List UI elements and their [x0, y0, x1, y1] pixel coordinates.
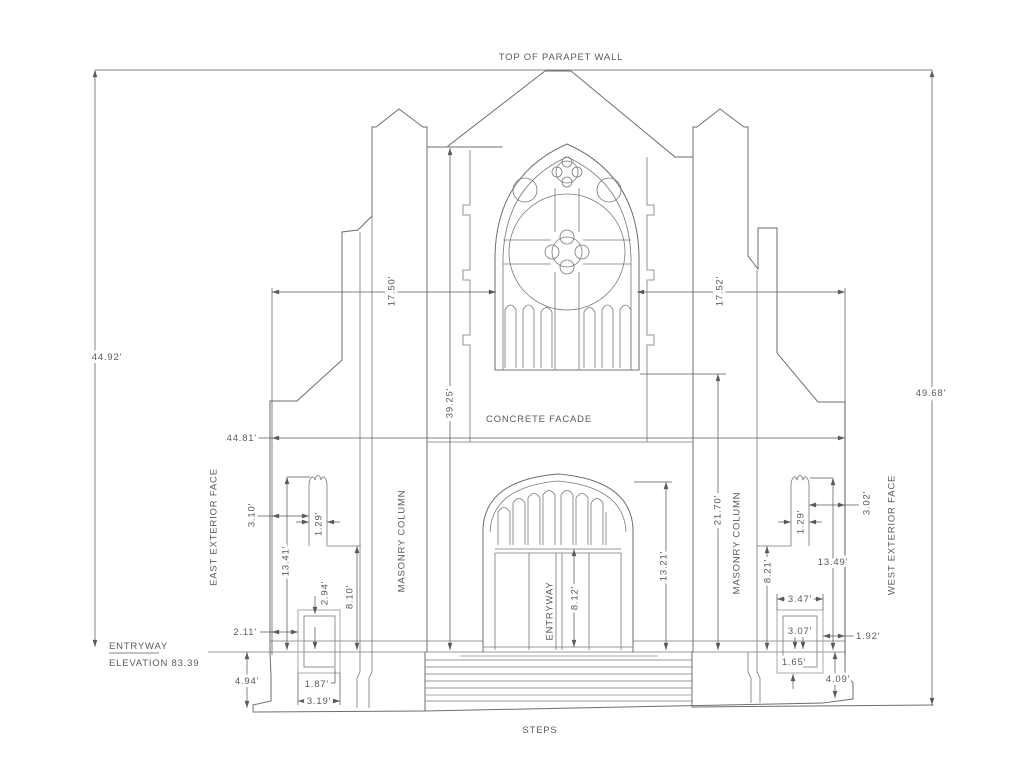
- dim-west-pinnacle-height: 13.49': [818, 557, 848, 568]
- dim-east-bay: 17.50': [386, 276, 397, 306]
- dim-overall-east: 44.92': [92, 352, 122, 363]
- east-tower: [270, 109, 427, 708]
- concrete-facade-label: CONCRETE FACADE: [486, 414, 592, 425]
- dim-west-ledge-height: 8.21': [762, 559, 773, 583]
- roundel-left: [513, 178, 537, 202]
- dim-east-pedestal-width: 3.19': [307, 696, 331, 707]
- dim-east-base-height: 4.94': [235, 676, 259, 687]
- masonry-column-west-label: MASONRY COLUMN: [731, 492, 742, 595]
- dim-upper-wall: 39.25': [444, 388, 455, 418]
- rose-window: [495, 144, 639, 370]
- dim-east-pinnacle-width: 1.29': [313, 512, 324, 536]
- entry-level-elevation: ELEVATION 83.39: [109, 658, 199, 669]
- entry-lancets: [498, 491, 606, 546]
- masonry-column-east-label: MASONRY COLUMN: [396, 490, 407, 593]
- quatrefoil-center: [545, 230, 589, 274]
- elevation-sheet: TOP OF PARAPET WALL CONCRETE FACADE EAST…: [0, 0, 1024, 768]
- dim-east-ledge-height: 8.10': [344, 585, 355, 609]
- dim-east-pedestal-panel-width: 1.87': [305, 679, 329, 690]
- roundel-right: [597, 178, 621, 202]
- dim-east-pedestal-offset: 2.11': [233, 627, 257, 638]
- dim-east-pinnacle-offset: 3.10': [246, 503, 257, 527]
- entry-level-name: ENTRYWAY: [109, 641, 168, 652]
- west-tower: [693, 109, 845, 703]
- dim-west-pinnacle-offset: 3.02': [861, 491, 872, 515]
- dim-facade-width: 44.81': [227, 433, 257, 444]
- top-of-parapet-label: TOP OF PARAPET WALL: [499, 52, 623, 63]
- elevation-drawing: TOP OF PARAPET WALL CONCRETE FACADE EAST…: [0, 0, 1024, 768]
- dim-west-pedestal-width: 3.47': [788, 594, 812, 605]
- dim-east-pedestal-panel-height: 2.94': [319, 581, 330, 605]
- rose-lancets: [505, 305, 631, 368]
- dim-west-base-height: 4.09': [826, 674, 850, 685]
- dim-west-pinnacle-width: 1.29': [795, 510, 806, 534]
- east-buttress-line: [463, 150, 470, 442]
- east-face-label: EAST EXTERIOR FACE: [208, 468, 219, 586]
- dim-west-pedestal-panel-height: 3.07': [788, 626, 812, 637]
- quatrefoil-top: [552, 157, 582, 187]
- gable-roof: [448, 71, 675, 157]
- entry-arch: [483, 474, 633, 652]
- entryway-door-label: ENTRYWAY: [544, 581, 555, 640]
- dim-west-pedestal-panel-depth: 1.65': [782, 657, 806, 668]
- steps: [425, 652, 823, 711]
- dim-entry-door: 8.12': [569, 586, 580, 610]
- steps-label: STEPS: [522, 725, 557, 736]
- west-face-label: WEST EXTERIOR FACE: [886, 475, 897, 595]
- dimension-lines: [95, 70, 932, 708]
- dim-entry-arch: 13.21': [658, 551, 669, 581]
- dim-overall-west: 49.68': [916, 388, 946, 399]
- west-buttress-line: [647, 157, 654, 442]
- dim-west-bay: 17.52': [714, 276, 725, 306]
- dim-east-pinnacle-height: 13.41': [280, 546, 291, 576]
- dim-lower-wall: 21.70': [712, 495, 723, 525]
- east-pedestal: [298, 610, 340, 673]
- dim-west-pedestal-offset: 1.92': [856, 631, 880, 642]
